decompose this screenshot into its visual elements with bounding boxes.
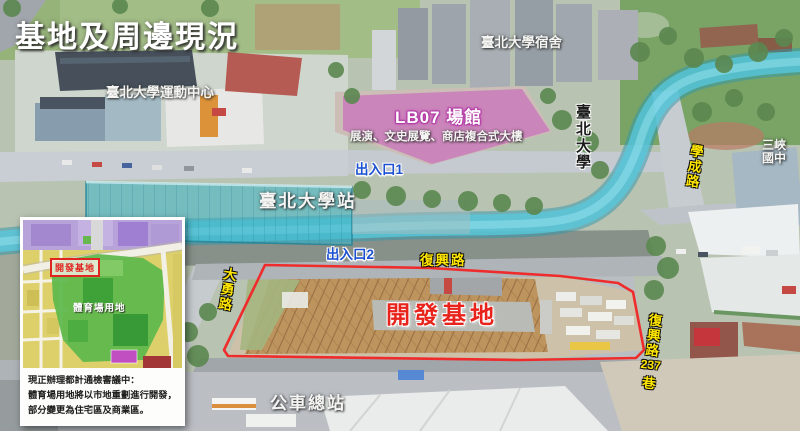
inset-stadium-label: 體育場用地 <box>73 300 126 314</box>
fuxing-road-label: 復興路 <box>420 249 467 269</box>
lb07-subtitle-label: 展演、文史展覽、商店複合式大樓 <box>350 128 523 144</box>
exit2-label: 出入口2 <box>326 243 374 263</box>
lb07-title-label: LB07 場館 <box>395 103 482 128</box>
fuxing-lane-road: 復興路 <box>645 313 663 359</box>
inset-caption: 現正辦理都計通檢審議中： 體育場用地將以市地重劃進行開發， 部分變更為住宅區及商… <box>23 368 182 423</box>
sanxia-school-label: 三峽 國中 <box>762 139 786 165</box>
inset-site-label: 開發基地 <box>50 258 100 277</box>
station-label: 臺北大學站 <box>259 188 357 213</box>
inset-map-graphic <box>23 220 182 368</box>
dormitory-label: 臺北大學宿舍 <box>481 31 562 51</box>
inset-caption-line2: 體育場用地將以市地重劃進行開發， <box>28 388 178 403</box>
exit1-label: 出入口1 <box>355 158 403 178</box>
inset-zoning-map-panel: 開發基地 體育場用地 現正辦理都計通檢審議中： 體育場用地將以市地重劃進行開發，… <box>20 217 185 426</box>
sports-center-label: 臺北大學運動中心 <box>106 81 214 101</box>
fuxing-lane-suffix: 巷 <box>641 372 657 393</box>
inset-caption-line1: 現正辦理都計通檢審議中： <box>28 373 178 388</box>
bus-terminal-label: 公車總站 <box>270 389 346 414</box>
sanxia-line2: 國中 <box>762 152 786 165</box>
development-site-label: 開發基地 <box>386 295 498 330</box>
university-label: 臺北大學 <box>576 105 591 172</box>
inset-caption-line3: 部分變更為住宅區及商業區。 <box>28 403 178 418</box>
inset-zoning-map: 開發基地 體育場用地 <box>23 220 182 368</box>
page-title: 基地及周邊現況 <box>15 12 239 56</box>
annotated-aerial-map: 基地及周邊現況 臺北大學運動中心 臺北大學宿舍 LB07 場館 展演、文史展覽、… <box>0 0 800 431</box>
